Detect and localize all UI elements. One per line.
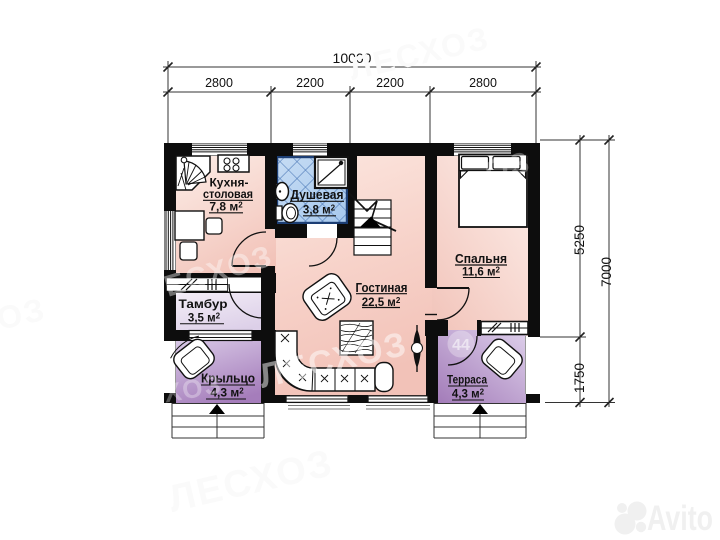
svg-text:Терраса: Терраса [447, 375, 488, 387]
svg-text:7,8 м2: 7,8 м2 [209, 200, 243, 214]
svg-text:5250: 5250 [572, 225, 587, 255]
svg-text:1750: 1750 [572, 363, 587, 393]
svg-text:Гостиная: Гостиная [356, 281, 408, 295]
svg-text:44: 44 [452, 337, 470, 354]
svg-text:7000: 7000 [599, 257, 614, 287]
svg-text:22,5 м2: 22,5 м2 [362, 296, 401, 309]
svg-text:11,6 м2: 11,6 м2 [462, 266, 500, 279]
svg-text:Душевая: Душевая [291, 188, 344, 202]
svg-text:2800: 2800 [469, 76, 497, 90]
svg-text:Спальня: Спальня [455, 251, 507, 266]
svg-text:2800: 2800 [205, 76, 233, 90]
svg-text:Тамбур: Тамбур [179, 297, 228, 311]
svg-text:Avito: Avito [647, 499, 713, 538]
svg-text:2200: 2200 [296, 76, 324, 90]
